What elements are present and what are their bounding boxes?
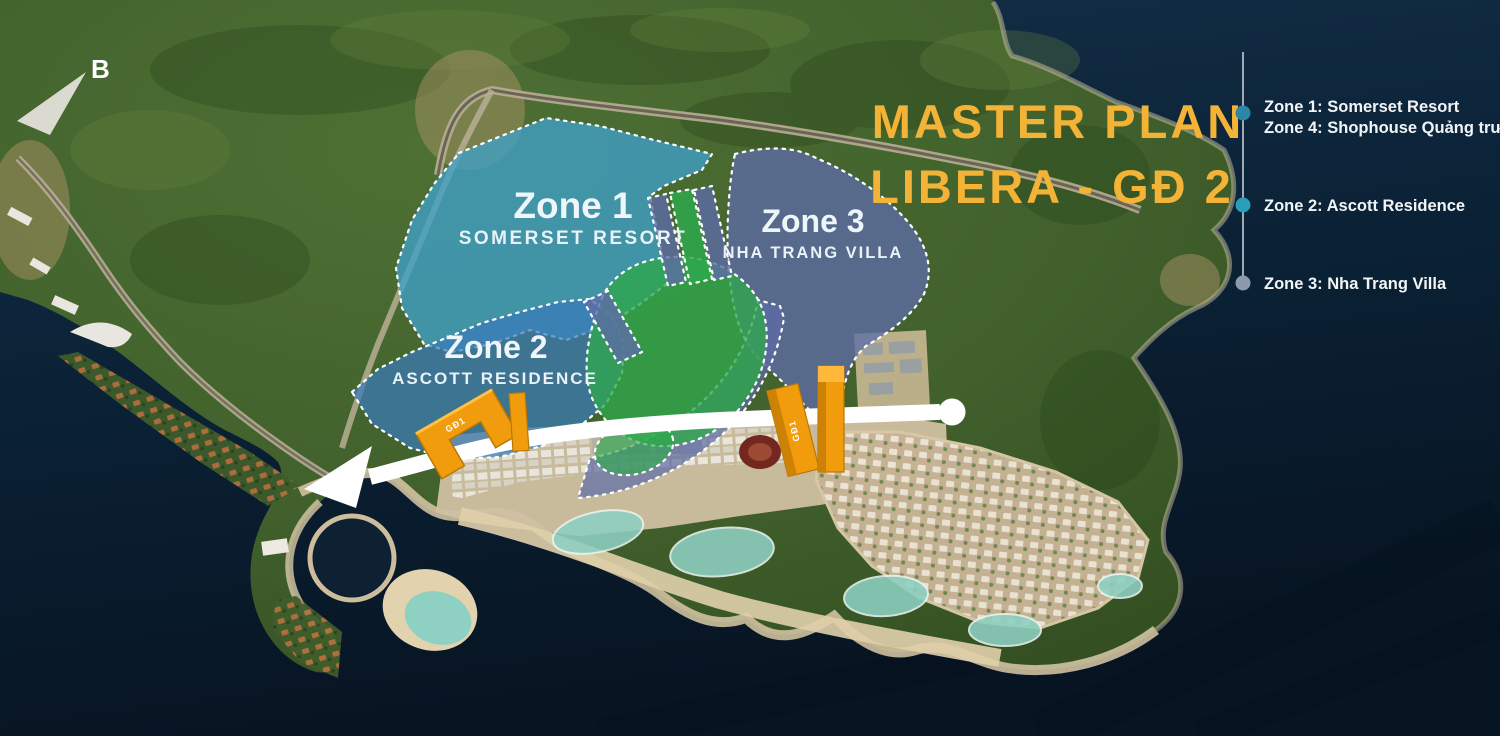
- phase1-slim-tower: [509, 393, 529, 452]
- legend-bullet-zone3: [1236, 276, 1251, 291]
- zone2-subtitle: ASCOTT RESIDENCE: [392, 369, 598, 388]
- zone3-subtitle: NHA TRANG VILLA: [723, 244, 904, 262]
- zone3-title: Zone 3: [761, 203, 864, 239]
- legend-item-zone1-line1: Zone 1: Somerset Resort: [1264, 98, 1460, 116]
- master-plan-map: GĐ1 GĐ1 Zone 1 SOMERSET RESORT Zone 2 AS…: [0, 0, 1500, 736]
- compass-letter: B: [91, 54, 110, 84]
- legend-item-zone3: Zone 3: Nha Trang Villa: [1264, 275, 1447, 293]
- zone2-title: Zone 2: [444, 329, 547, 365]
- title-line-2: LIBERA - GĐ 2: [870, 160, 1234, 213]
- legend-item-zone2: Zone 2: Ascott Residence: [1264, 197, 1465, 215]
- zone1-subtitle: SOMERSET RESORT: [459, 228, 688, 249]
- route-endpoint: [939, 399, 966, 426]
- legend-item-zone1-line2: Zone 4: Shophouse Quảng trường: [1264, 119, 1500, 137]
- zone1-title: Zone 1: [513, 185, 632, 226]
- round-pond: [310, 516, 394, 600]
- dome-building-top: [748, 443, 772, 461]
- legend-bullet-zone1: [1236, 106, 1251, 121]
- phase1-tower-b: [818, 366, 844, 472]
- title-line-1: MASTER PLAN: [872, 95, 1244, 148]
- legend-bullet-zone2: [1236, 198, 1251, 213]
